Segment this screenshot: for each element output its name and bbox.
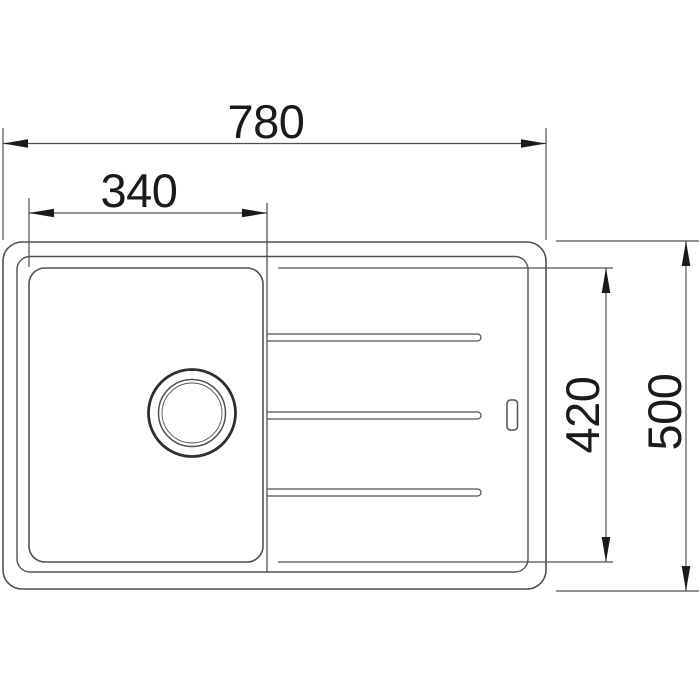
dimension-label-overall-width: 780 — [228, 95, 305, 148]
drainer-ridge-1 — [267, 334, 481, 341]
arrowhead-up-icon — [682, 241, 691, 266]
dimension-label-inner-depth: 420 — [556, 377, 609, 454]
tap-hole — [507, 400, 518, 430]
dimension-bowl-width: 340 — [29, 164, 267, 267]
sink-bowl — [29, 268, 263, 562]
sink-technical-drawing: 780 340 420 500 — [0, 0, 700, 700]
sink-outer-rim — [3, 242, 546, 589]
sink-body — [3, 203, 613, 589]
arrowhead-down-icon — [682, 566, 691, 591]
arrowhead-right-icon — [521, 139, 546, 148]
dimension-label-bowl-width: 340 — [101, 164, 178, 217]
arrowhead-down-icon — [602, 537, 611, 562]
arrowhead-left-icon — [3, 139, 28, 148]
dimension-overall-width: 780 — [3, 95, 546, 240]
drainer-ridge-2 — [267, 412, 481, 419]
drain-recess-circle — [162, 383, 222, 443]
drainer-ridge-3 — [267, 489, 481, 496]
dimension-label-overall-depth: 500 — [638, 374, 691, 451]
arrowhead-up-icon — [602, 268, 611, 293]
arrowhead-left-icon — [29, 209, 54, 218]
dimension-inner-depth: 420 — [556, 268, 610, 562]
drain-inner-circle — [159, 380, 226, 447]
sink-inner-rim — [17, 257, 528, 573]
arrowhead-right-icon — [242, 209, 267, 218]
drawing-canvas: 780 340 420 500 — [0, 0, 700, 700]
